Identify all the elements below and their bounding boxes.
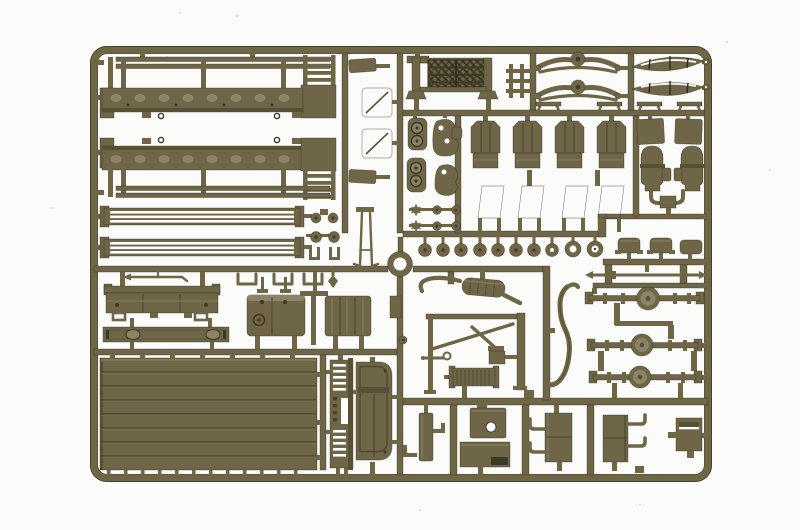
tie-rod [585,264,707,279]
battery-box [460,442,510,475]
exhaust-assembly [421,271,520,303]
headlight-plates [407,111,427,192]
front-grille-panel [326,355,353,475]
hardware-knobs [409,205,460,231]
plate-with-hole [470,402,506,438]
wing-window-frames [349,58,401,184]
mesh-screen [406,56,498,110]
footboard-strip [103,318,229,350]
cargo-bed-panel [100,353,321,475]
mini-ladder [506,64,531,98]
tailgate-panel [104,272,220,320]
axles [585,287,704,398]
wheel-discs [419,236,604,257]
tool-box [325,296,371,349]
slat-rail-top [100,206,312,227]
slat-rail-bottom [100,237,312,258]
rail-end-hardware [306,209,340,260]
wiper-arms [354,207,378,266]
cab-rear-panel [353,357,398,475]
crank-handle [123,271,187,281]
fuel-tank [247,277,305,349]
oil-cooler [444,351,517,398]
storage-bin [668,418,702,458]
step-box-left [530,405,572,471]
center-ring [388,252,413,277]
seat-backs [471,116,626,168]
stake-side-panel-top [100,55,336,119]
bracket-clips [238,271,338,288]
hub-caps [615,238,702,260]
step-box-right [603,415,645,473]
door-panel-part [403,404,445,461]
drive-shafts [632,56,709,96]
model-kit-sprue-photo [0,0,800,530]
stake-side-panel-bottom [100,137,336,200]
leaf-springs [532,52,628,100]
air-tanks [636,111,705,215]
